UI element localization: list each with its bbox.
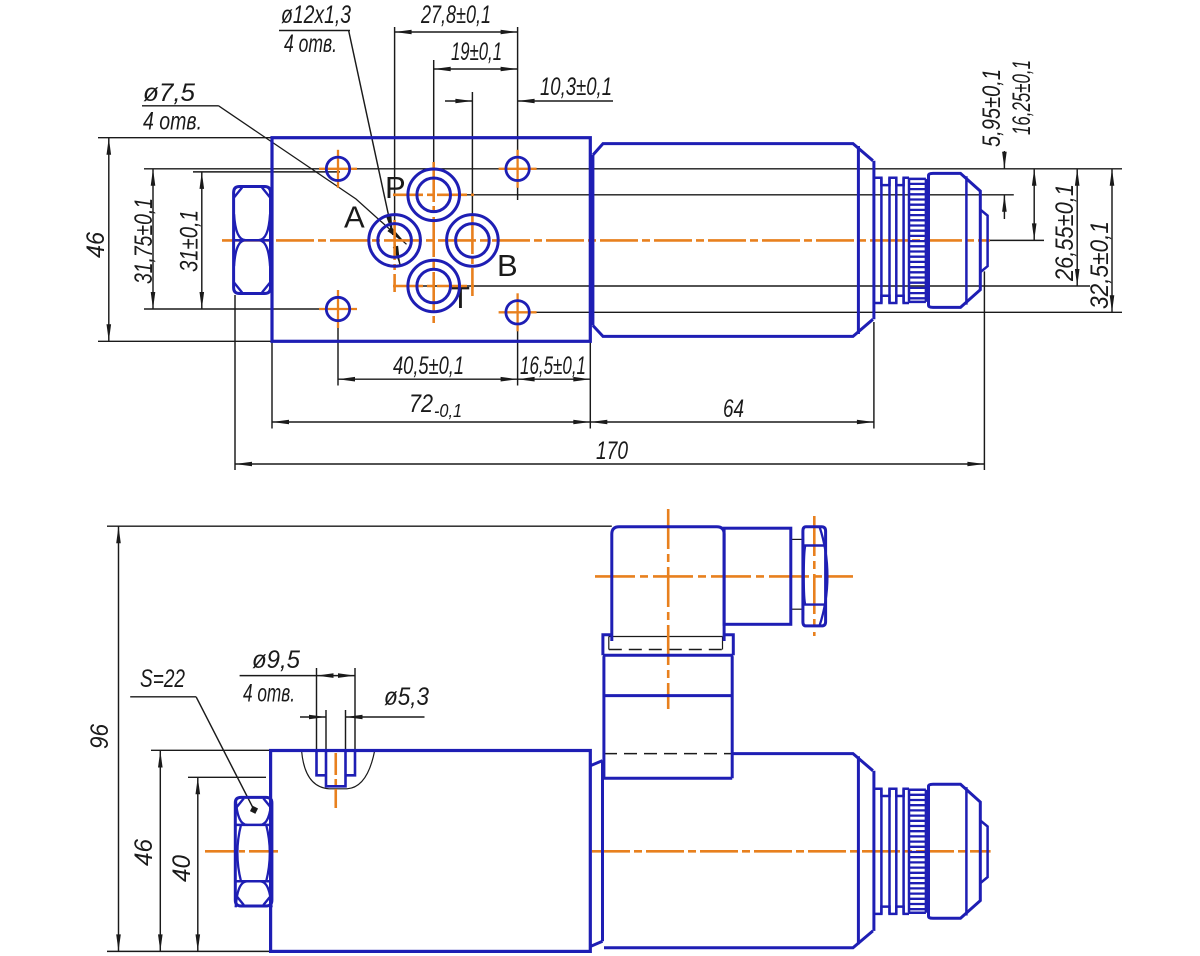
svg-text:31,75±0,1: 31,75±0,1 [130,198,158,284]
svg-text:5,95±0,1: 5,95±0,1 [978,69,1006,147]
svg-text:40,5±0,1: 40,5±0,1 [393,352,464,380]
svg-text:19±0,1: 19±0,1 [451,38,502,66]
svg-text:46: 46 [130,839,158,866]
svg-text:4 отв.: 4 отв. [243,680,295,708]
svg-text:16,5±0,1: 16,5±0,1 [520,352,586,380]
svg-text:ø12x1,3: ø12x1,3 [281,1,351,29]
svg-text:96: 96 [86,724,114,749]
svg-text:4 отв.: 4 отв. [284,30,337,58]
svg-text:A: A [344,200,365,235]
svg-text:B: B [497,248,518,283]
svg-text:16,25±0,1: 16,25±0,1 [1008,60,1036,135]
svg-text:-0,1: -0,1 [434,401,462,421]
svg-text:26,55±0,1: 26,55±0,1 [1051,184,1079,282]
svg-text:ø7,5: ø7,5 [143,79,195,107]
svg-text:46: 46 [82,232,110,258]
svg-text:32,5±0,1: 32,5±0,1 [1086,221,1114,309]
svg-text:10,3±0,1: 10,3±0,1 [540,73,612,101]
svg-text:P: P [385,170,406,205]
svg-text:40: 40 [168,855,196,882]
svg-text:64: 64 [723,395,744,423]
svg-text:72: 72 [409,390,433,418]
svg-text:S=22: S=22 [140,665,185,693]
svg-text:4 отв.: 4 отв. [143,108,202,136]
svg-text:ø5,3: ø5,3 [384,683,429,711]
svg-text:31±0,1: 31±0,1 [176,210,204,272]
svg-text:ø9,5: ø9,5 [252,646,300,674]
svg-text:170: 170 [596,437,628,465]
svg-text:27,8±0,1: 27,8±0,1 [420,1,491,29]
